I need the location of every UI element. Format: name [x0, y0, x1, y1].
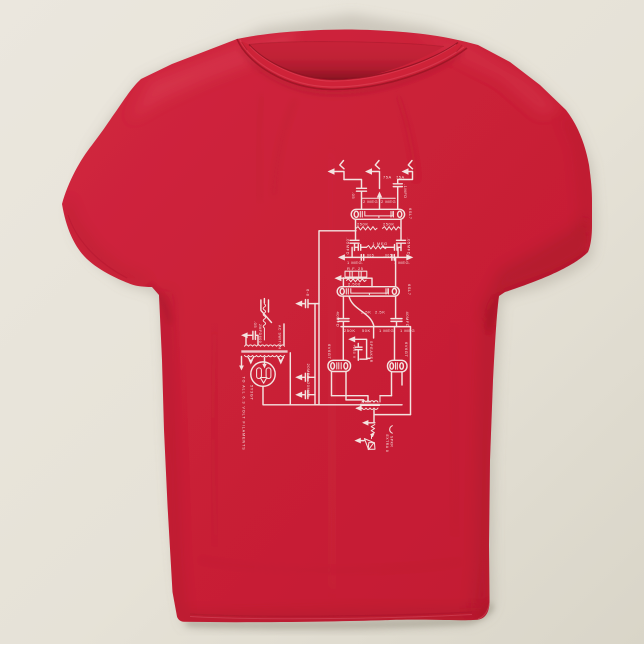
- svg-text:2MFD600: 2MFD600: [258, 324, 262, 343]
- svg-text:.05MFD: .05MFD: [407, 238, 412, 256]
- svg-text:R.F. 25: R.F. 25: [347, 266, 364, 271]
- svg-text:20MFD: 20MFD: [306, 382, 311, 398]
- svg-text:2.5K: 2.5K: [361, 310, 371, 315]
- svg-text:6SL7: 6SL7: [408, 208, 413, 220]
- svg-text:SPEAKER: SPEAKER: [369, 341, 373, 363]
- svg-text:SPKR: SPKR: [389, 436, 393, 447]
- svg-text:1 MEG: 1 MEG: [379, 328, 394, 333]
- svg-text:50K: 50K: [362, 328, 371, 333]
- svg-text:1 MEG.: 1 MEG.: [347, 260, 364, 265]
- svg-text:20MFD: 20MFD: [306, 364, 311, 380]
- svg-text:6V6GT: 6V6GT: [327, 344, 332, 359]
- svg-text:1 MEG.: 1 MEG.: [394, 260, 411, 265]
- svg-text:250K: 250K: [383, 221, 395, 226]
- svg-text:250K: 250K: [357, 221, 369, 226]
- svg-text:EXTRA 8: EXTRA 8: [385, 435, 389, 453]
- svg-text:.005: .005: [366, 254, 375, 258]
- svg-text:.05MFD: .05MFD: [346, 238, 351, 256]
- svg-text:.05: .05: [351, 192, 356, 199]
- svg-text:1 MEG: 1 MEG: [400, 328, 415, 333]
- svg-text:5Y3GT: 5Y3GT: [250, 385, 255, 400]
- svg-text:2,500: 2,500: [348, 281, 361, 286]
- svg-text:2.5K: 2.5K: [375, 310, 385, 315]
- svg-text:2 MEG: 2 MEG: [381, 199, 396, 204]
- svg-text:+250 V: +250 V: [352, 345, 356, 359]
- svg-text:.05: .05: [253, 321, 258, 328]
- svg-text:250K: 250K: [344, 328, 356, 333]
- svg-text:75A: 75A: [396, 175, 405, 180]
- svg-text:1 MEG: 1 MEG: [373, 241, 388, 246]
- svg-text:40MFD: 40MFD: [336, 312, 341, 328]
- svg-text:2 MEG: 2 MEG: [363, 199, 378, 204]
- svg-text:TO ALL 6.3 VOLT FILAMENTS: TO ALL 6.3 VOLT FILAMENTS: [242, 377, 246, 451]
- svg-text:.005: .005: [384, 254, 393, 258]
- svg-text:6-8: 6-8: [306, 289, 311, 297]
- svg-text:6V6GT: 6V6GT: [404, 342, 409, 357]
- svg-text:40MFD: 40MFD: [405, 312, 410, 328]
- svg-text:6SL7: 6SL7: [407, 284, 412, 296]
- svg-text:.1MFD: .1MFD: [403, 184, 408, 199]
- svg-text:75A: 75A: [383, 175, 392, 180]
